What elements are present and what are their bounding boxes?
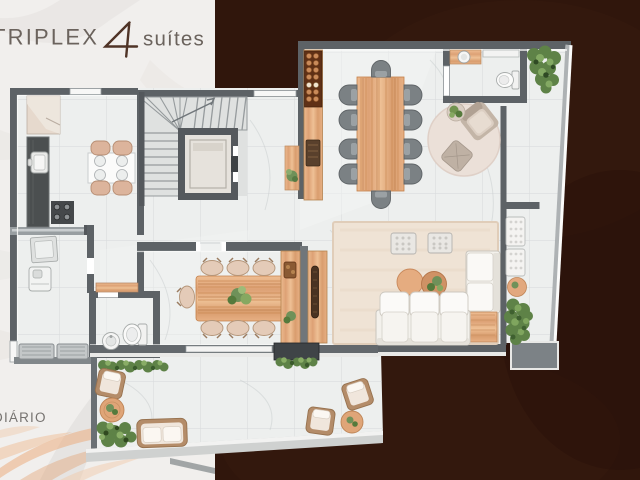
svg-text:suítes: suítes bbox=[143, 28, 205, 51]
svg-text:DIÁRIO: DIÁRIO bbox=[0, 410, 47, 425]
svg-text:TRIPLEX: TRIPLEX bbox=[0, 25, 99, 50]
